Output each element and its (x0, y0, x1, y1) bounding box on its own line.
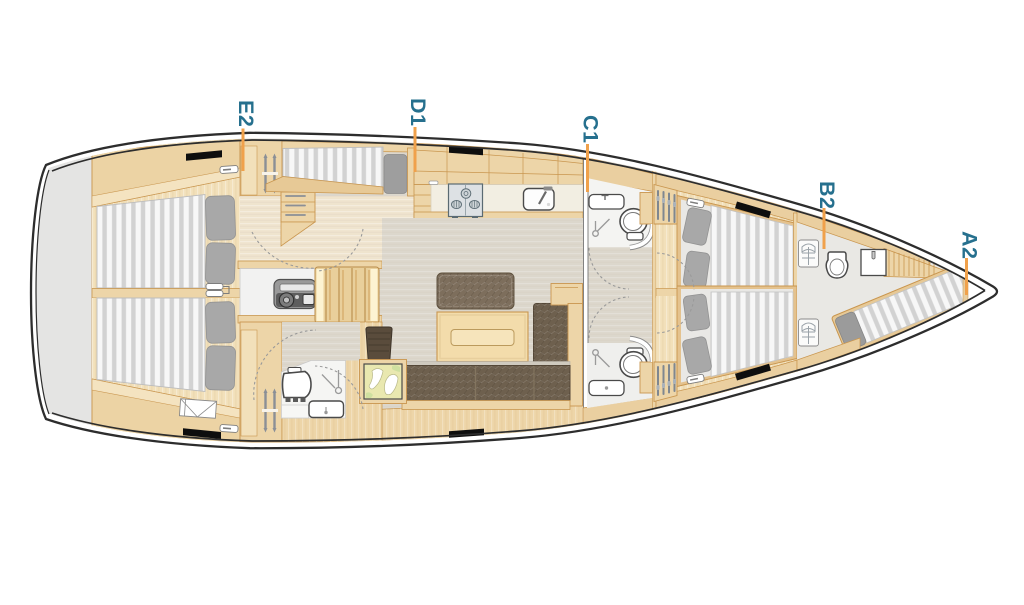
svg-text:B2: B2 (815, 181, 839, 209)
svg-text:A2: A2 (958, 231, 982, 259)
svg-text:C1: C1 (579, 115, 603, 143)
svg-text:E2: E2 (234, 100, 258, 127)
svg-text:D1: D1 (406, 98, 430, 126)
